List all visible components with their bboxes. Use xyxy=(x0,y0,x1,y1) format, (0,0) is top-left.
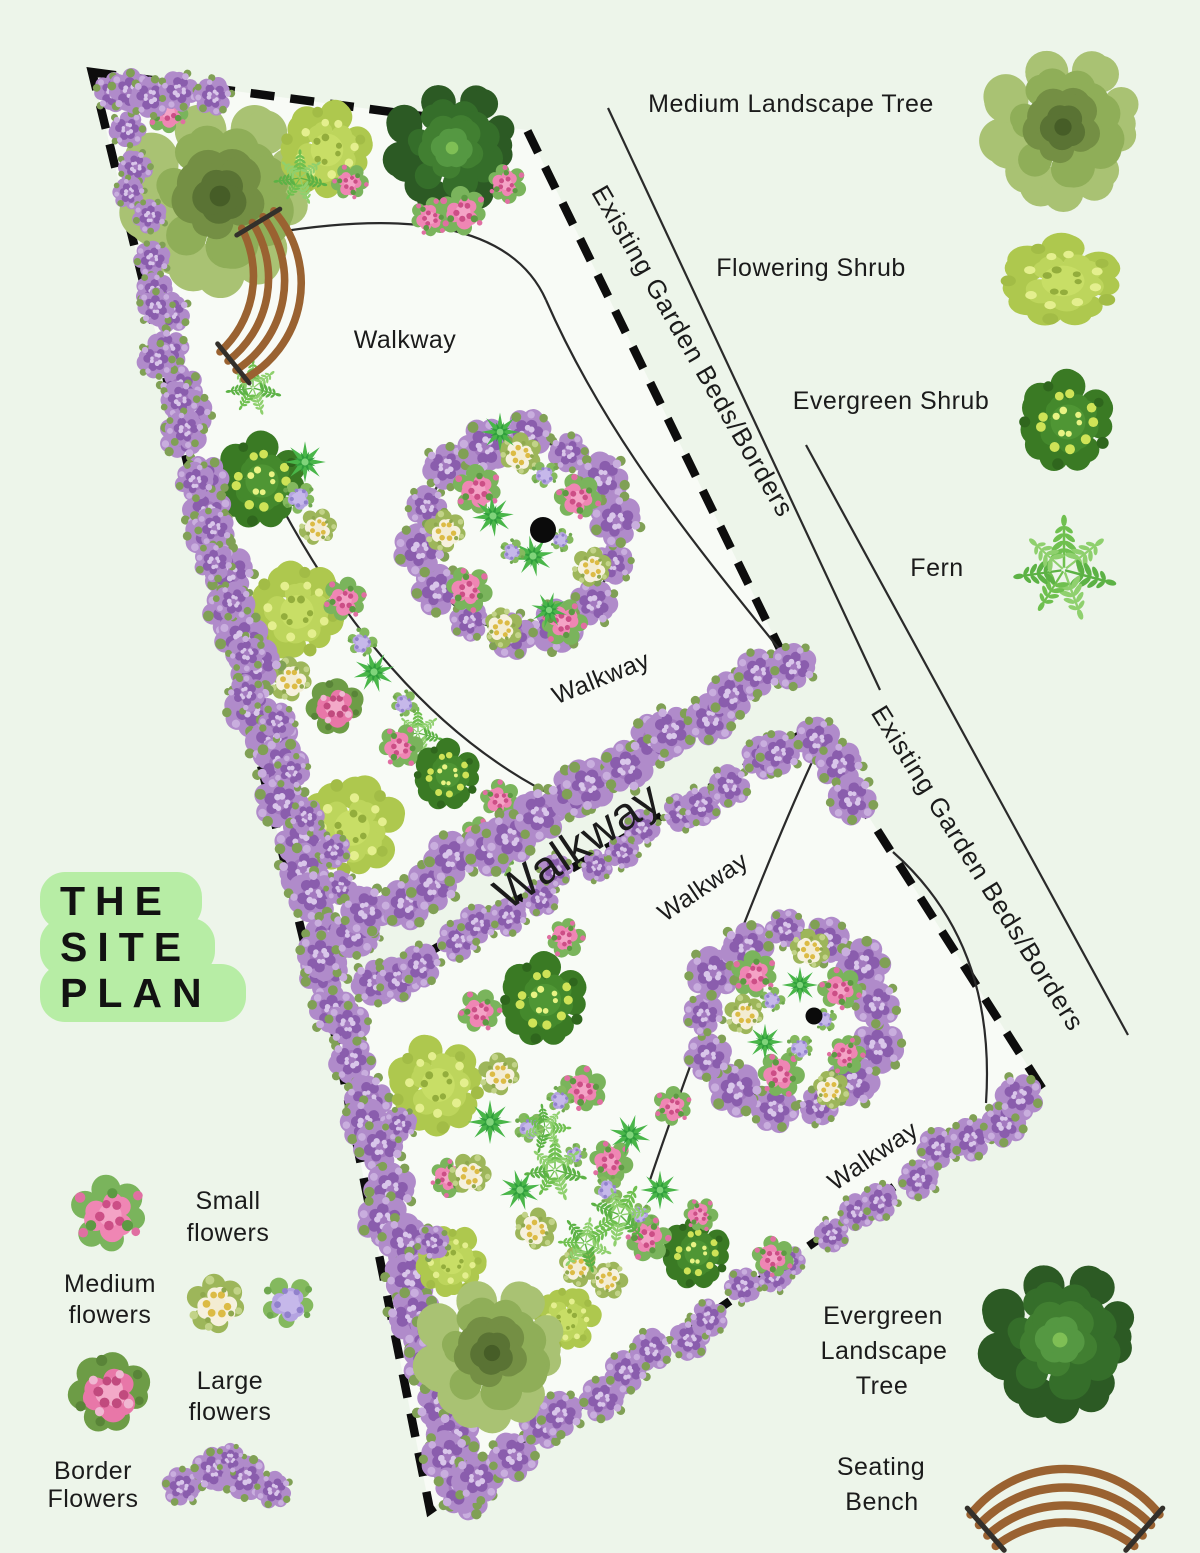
seating-bench-icon xyxy=(967,1469,1162,1550)
legend-small-flowers-label: Small xyxy=(195,1187,260,1215)
legend-border-flowers-label: Flowers xyxy=(47,1485,138,1513)
green-plant xyxy=(468,1100,512,1144)
border-flowers-icon xyxy=(155,1436,299,1516)
title-text: PLAN xyxy=(60,970,212,1016)
bed-1-center-point xyxy=(530,517,556,543)
site-plan-canvas: Walkway Walkway Walkway Walkway Walkway … xyxy=(0,0,1200,1553)
site-plan-svg: Walkway Walkway Walkway Walkway Walkway … xyxy=(0,0,1200,1553)
legend-flowering-shrub-label: Flowering Shrub xyxy=(716,254,906,282)
fern-icon xyxy=(1011,515,1120,625)
walkway-label-1: Walkway xyxy=(354,326,457,354)
title-text: THE xyxy=(60,878,172,924)
evergreen-shrub-icon xyxy=(1019,369,1113,471)
green-plant xyxy=(284,441,326,483)
medium-flowers-purple-icon xyxy=(263,1278,313,1328)
evergreen-landscape-tree-icon xyxy=(978,1265,1134,1423)
legend-seating-bench-label: Bench xyxy=(845,1488,918,1516)
title-badge: THE SITE PLAN xyxy=(40,872,246,1022)
green-plant xyxy=(481,413,520,452)
legend-right-icons xyxy=(967,51,1162,1550)
bed-2-center-point xyxy=(806,1008,823,1025)
legend-medium-tree-label: Medium Landscape Tree xyxy=(648,90,934,118)
medium-flowers-white-icon xyxy=(187,1274,244,1333)
legend-fern-label: Fern xyxy=(910,554,963,582)
legend-evergreen-tree-label: Tree xyxy=(856,1372,908,1400)
large-flowers-icon xyxy=(68,1352,150,1431)
title-line: PLAN xyxy=(40,964,246,1022)
legend-large-flowers-label: flowers xyxy=(189,1398,272,1426)
flowering-shrub-icon xyxy=(1001,233,1121,326)
legend-evergreen-tree-label: Evergreen xyxy=(823,1302,943,1330)
legend-evergreen-shrub-label: Evergreen Shrub xyxy=(793,387,990,415)
title-line: SITE xyxy=(40,918,215,976)
legend-seating-bench-label: Seating xyxy=(837,1453,925,1481)
legend-evergreen-tree-label: Landscape xyxy=(821,1337,948,1365)
medium-landscape-tree-icon xyxy=(979,51,1138,212)
legend-medium-flowers-label: Medium xyxy=(64,1270,156,1298)
legend-large-flowers-label: Large xyxy=(197,1367,263,1395)
small-flowers-icon xyxy=(71,1175,145,1252)
legend-border-flowers-label: Border xyxy=(54,1457,132,1485)
title-text: SITE xyxy=(60,924,191,970)
green-plant xyxy=(641,1171,680,1210)
legend-medium-flowers-label: flowers xyxy=(69,1301,152,1329)
legend-small-flowers-label: flowers xyxy=(187,1219,270,1247)
green-plant xyxy=(747,1024,783,1060)
